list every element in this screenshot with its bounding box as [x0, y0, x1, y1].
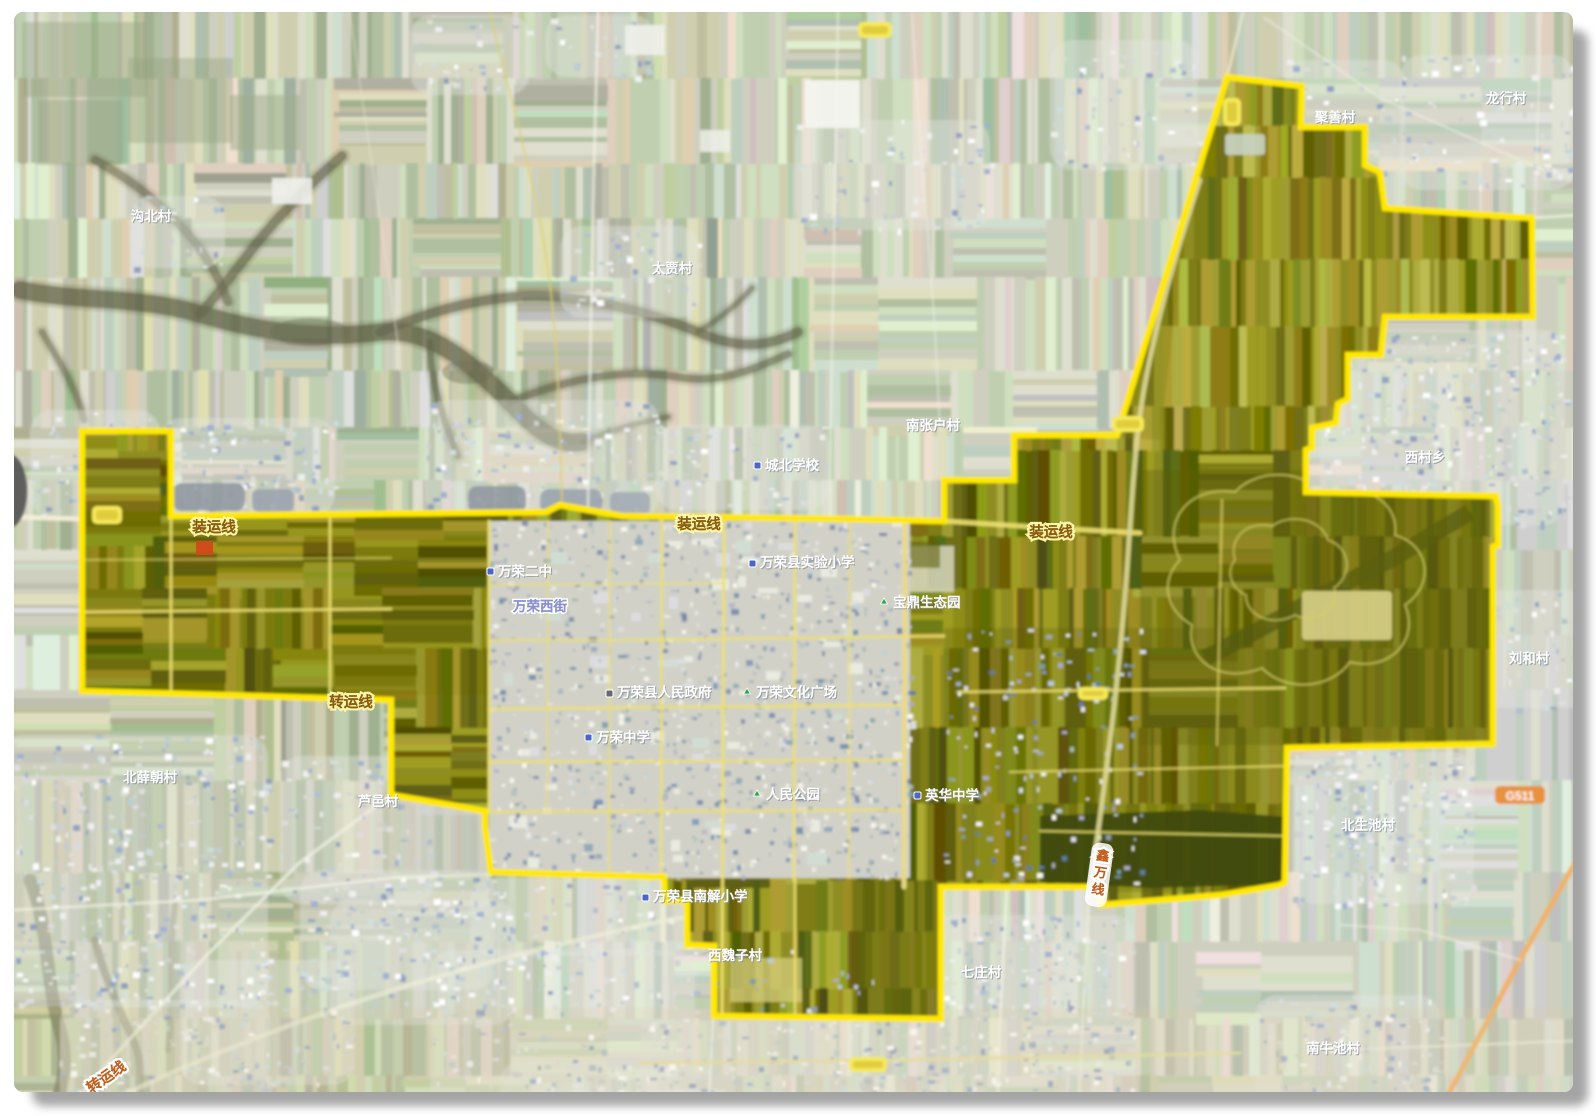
svg-text:万: 万	[1092, 864, 1108, 881]
svg-text:万荣中学: 万荣中学	[595, 729, 650, 745]
svg-text:北生池村: 北生池村	[1341, 817, 1395, 833]
svg-text:万荣县南解小学: 万荣县南解小学	[652, 888, 748, 904]
svg-text:转运线: 转运线	[329, 693, 373, 711]
svg-text:英华中学: 英华中学	[924, 787, 979, 803]
svg-text:万荣县实验小学: 万荣县实验小学	[759, 554, 855, 570]
svg-text:芦邑村: 芦邑村	[358, 793, 399, 809]
svg-text:聚善村: 聚善村	[1314, 109, 1356, 125]
svg-text:万荣二中: 万荣二中	[497, 563, 552, 579]
svg-text:G511: G511	[1506, 789, 1535, 803]
svg-text:宝鼎生态园: 宝鼎生态园	[893, 594, 961, 610]
svg-text:西魏子村: 西魏子村	[708, 947, 762, 963]
svg-text:万荣县人民政府: 万荣县人民政府	[616, 684, 712, 700]
svg-text:太贾村: 太贾村	[652, 260, 693, 276]
svg-text:万荣西街: 万荣西街	[512, 598, 567, 614]
svg-text:龙行村: 龙行村	[1485, 90, 1527, 106]
svg-text:七庄村: 七庄村	[961, 964, 1002, 980]
svg-text:西村乡: 西村乡	[1405, 449, 1446, 465]
svg-text:装运线: 装运线	[191, 518, 236, 536]
svg-text:万荣文化广场: 万荣文化广场	[755, 684, 837, 700]
svg-text:北薛朝村: 北薛朝村	[123, 769, 177, 785]
svg-text:刘和村: 刘和村	[1509, 650, 1550, 666]
svg-text:线: 线	[1091, 881, 1106, 898]
svg-text:人民公园: 人民公园	[766, 787, 820, 802]
svg-text:南牛池村: 南牛池村	[1306, 1040, 1360, 1056]
svg-text:装运线: 装运线	[1028, 523, 1073, 541]
svg-text:南张户村: 南张户村	[906, 417, 960, 433]
svg-text:城北学校: 城北学校	[765, 457, 819, 473]
svg-text:鑫: 鑫	[1094, 847, 1110, 864]
svg-text:沟北村: 沟北村	[131, 208, 172, 224]
svg-text:装运线: 装运线	[676, 515, 721, 533]
